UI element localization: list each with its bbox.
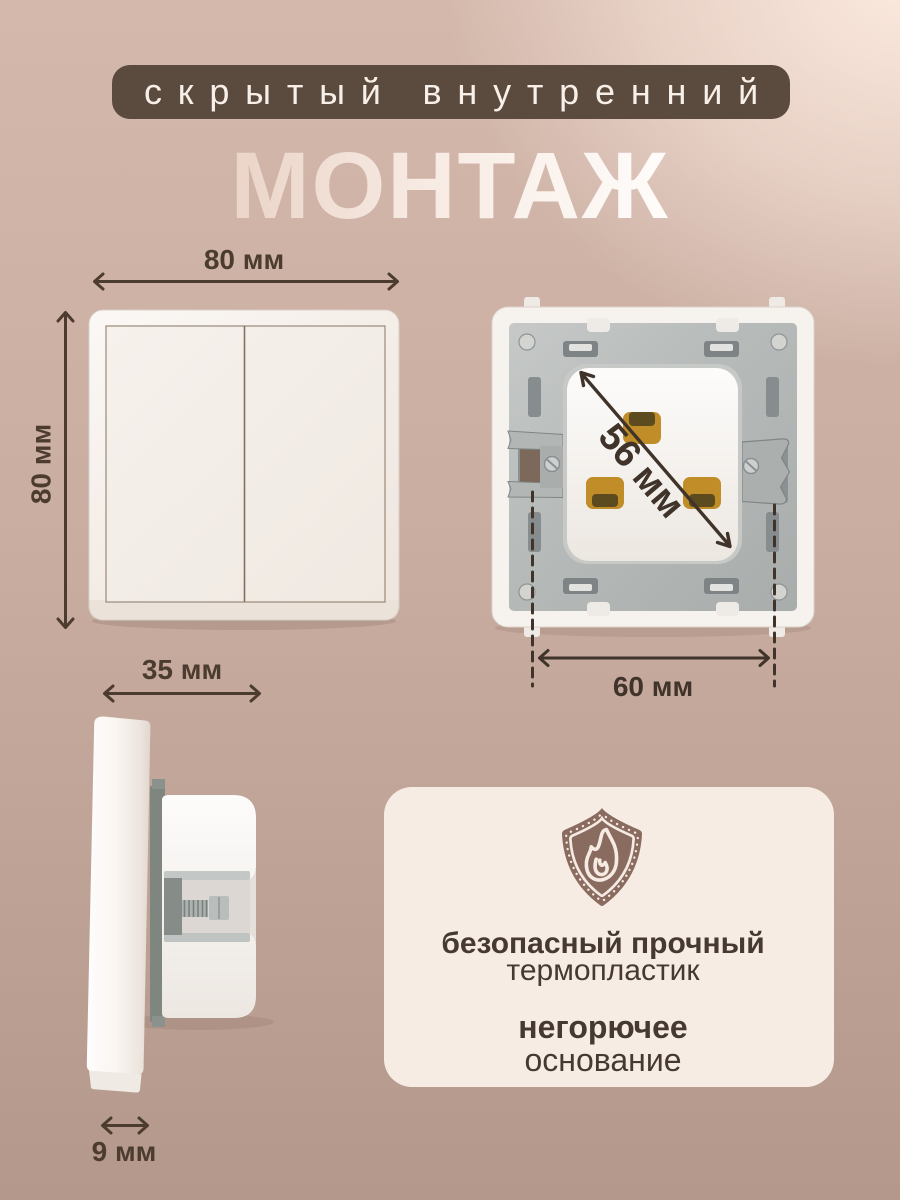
svg-text:80 мм: 80 мм [26,424,57,504]
svg-text:35 мм: 35 мм [142,654,222,685]
svg-text:60 мм: 60 мм [613,671,693,702]
svg-text:80 мм: 80 мм [204,244,284,275]
svg-text:9 мм: 9 мм [92,1136,157,1167]
